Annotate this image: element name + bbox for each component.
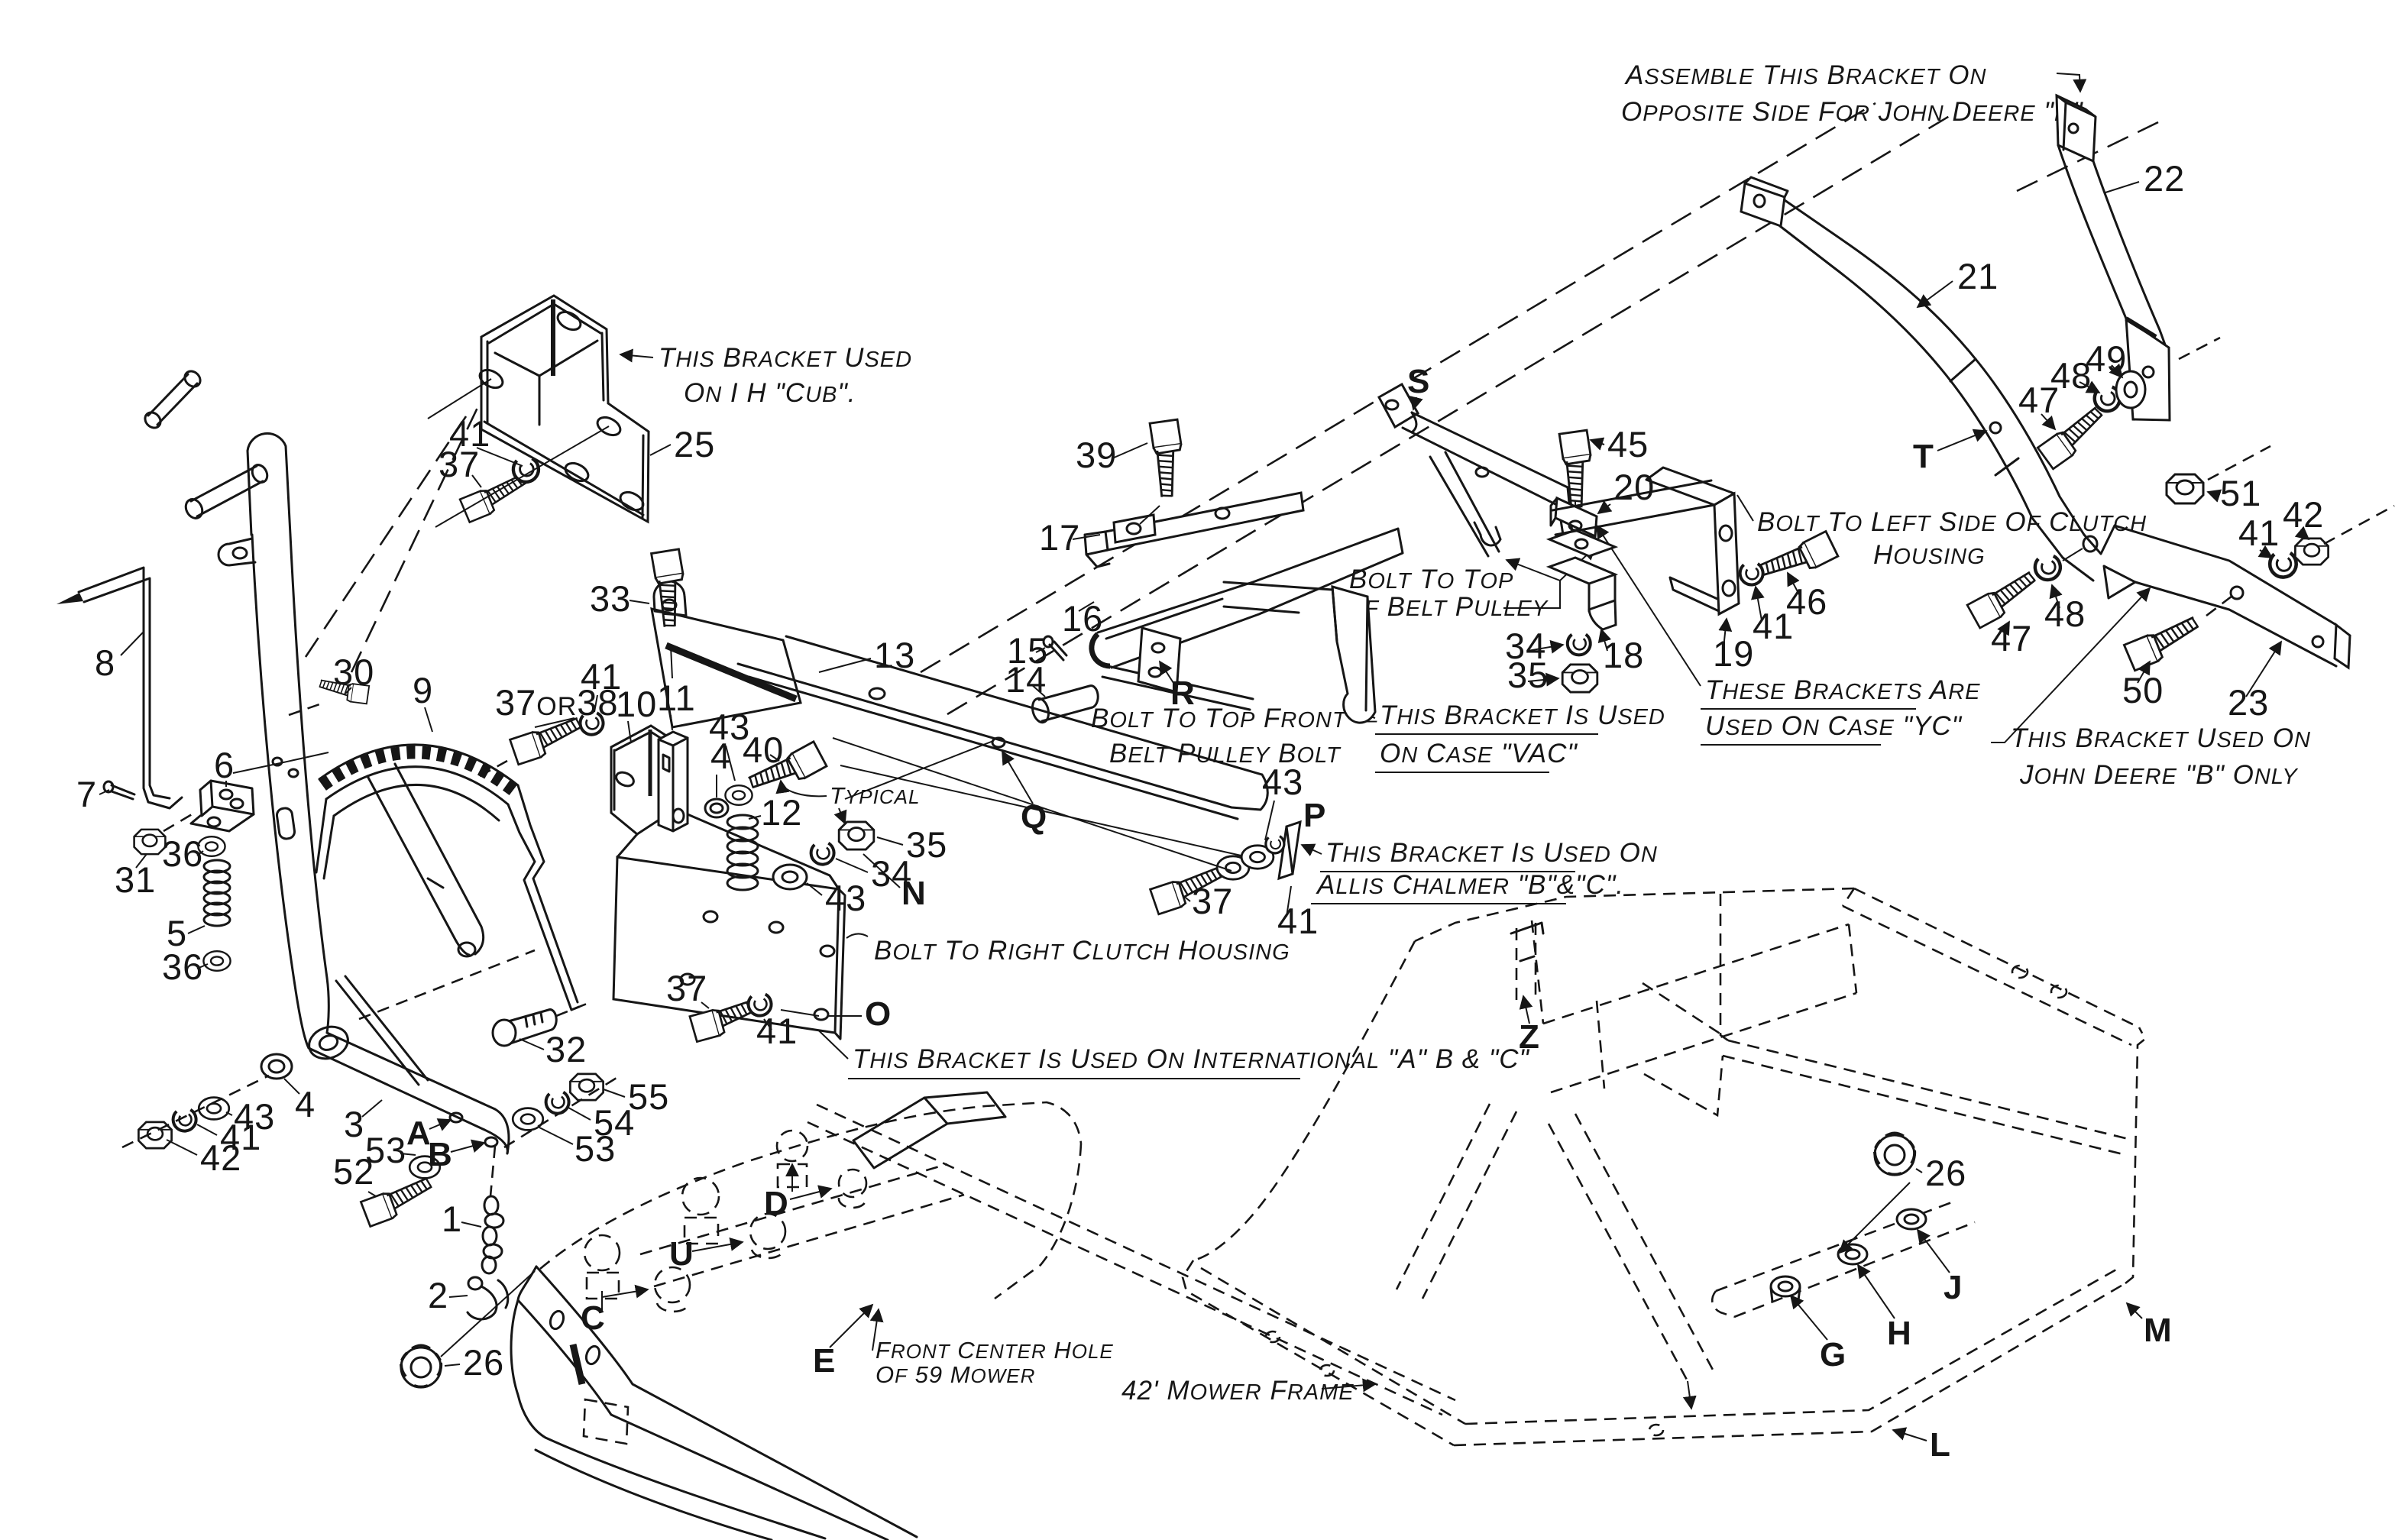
svg-text:ON CASE "VAC": ON CASE "VAC" bbox=[1380, 739, 1578, 768]
svg-text:41: 41 bbox=[1277, 901, 1319, 941]
svg-text:26: 26 bbox=[1925, 1153, 1966, 1193]
svg-text:Z: Z bbox=[1519, 1018, 1539, 1056]
svg-text:4: 4 bbox=[295, 1084, 316, 1124]
svg-text:ASSEMBLE THIS BRACKET ON: ASSEMBLE THIS BRACKET ON bbox=[1624, 60, 1986, 90]
svg-text:THIS BRACKET USED: THIS BRACKET USED bbox=[659, 343, 912, 373]
svg-text:A: A bbox=[406, 1115, 431, 1152]
svg-text:18: 18 bbox=[1603, 635, 1644, 675]
svg-text:D: D bbox=[764, 1185, 788, 1222]
svg-text:43: 43 bbox=[825, 878, 866, 918]
svg-text:BOLT TO TOP: BOLT TO TOP bbox=[1349, 565, 1513, 594]
svg-text:6: 6 bbox=[214, 745, 235, 785]
svg-text:T: T bbox=[1913, 438, 1934, 475]
svg-text:51: 51 bbox=[2220, 473, 2261, 513]
svg-text:50: 50 bbox=[2122, 670, 2164, 710]
svg-text:8: 8 bbox=[95, 642, 115, 683]
svg-text:THIS BRACKET IS USED: THIS BRACKET IS USED bbox=[1380, 700, 1665, 730]
svg-text:TYPICAL: TYPICAL bbox=[830, 782, 920, 809]
svg-text:7: 7 bbox=[76, 774, 97, 814]
svg-text:4: 4 bbox=[710, 736, 731, 776]
svg-text:35: 35 bbox=[1507, 655, 1549, 695]
svg-text:15: 15 bbox=[1007, 630, 1048, 671]
svg-text:N: N bbox=[901, 875, 926, 912]
svg-text:ALLIS CHALMER "B"&"C".: ALLIS CHALMER "B"&"C". bbox=[1316, 870, 1624, 900]
svg-text:48: 48 bbox=[2044, 594, 2086, 634]
svg-text:JOHN DEERE "B" ONLY: JOHN DEERE "B" ONLY bbox=[2019, 760, 2299, 790]
svg-text:OF BELT PULLEY: OF BELT PULLEY bbox=[1343, 592, 1549, 622]
svg-text:40: 40 bbox=[743, 730, 784, 770]
svg-text:17: 17 bbox=[1039, 517, 1080, 558]
svg-text:J: J bbox=[1944, 1269, 1962, 1306]
svg-text:FRONT CENTER HOLE: FRONT CENTER HOLE bbox=[875, 1337, 1114, 1364]
svg-text:11: 11 bbox=[657, 678, 696, 718]
svg-text:Q: Q bbox=[1021, 798, 1047, 836]
svg-text:45: 45 bbox=[1607, 424, 1649, 464]
svg-text:USED ON CASE "YC": USED ON CASE "YC" bbox=[1705, 711, 1963, 741]
svg-text:53: 53 bbox=[365, 1130, 406, 1170]
svg-text:39: 39 bbox=[1076, 435, 1117, 475]
svg-text:OF 59 MOWER: OF 59 MOWER bbox=[875, 1361, 1035, 1388]
svg-text:E: E bbox=[813, 1342, 835, 1380]
svg-text:43: 43 bbox=[1262, 762, 1303, 802]
svg-text:2: 2 bbox=[428, 1275, 448, 1315]
svg-text:THIS BRACKET IS USED ON: THIS BRACKET IS USED ON bbox=[1325, 838, 1658, 868]
svg-text:THESE BRACKETS ARE: THESE BRACKETS ARE bbox=[1705, 675, 1981, 705]
svg-text:20: 20 bbox=[1613, 467, 1655, 507]
svg-text:U: U bbox=[669, 1235, 694, 1273]
svg-text:49: 49 bbox=[2086, 338, 2127, 379]
svg-text:M: M bbox=[2144, 1312, 2172, 1349]
svg-text:OPPOSITE SIDE FOR JOHN DEERE ": OPPOSITE SIDE FOR JOHN DEERE "B" bbox=[1621, 97, 2083, 127]
svg-text:55: 55 bbox=[628, 1076, 669, 1117]
svg-text:R: R bbox=[1170, 675, 1195, 712]
svg-text:36: 36 bbox=[162, 833, 203, 874]
svg-text:47: 47 bbox=[1991, 618, 2032, 658]
svg-text:P: P bbox=[1303, 797, 1325, 834]
svg-text:23: 23 bbox=[2228, 682, 2269, 723]
svg-text:H: H bbox=[1887, 1315, 1911, 1352]
svg-text:BOLT TO RIGHT CLUTCH HOUSING: BOLT TO RIGHT CLUTCH HOUSING bbox=[874, 936, 1290, 966]
svg-text:36: 36 bbox=[162, 946, 203, 987]
svg-text:25: 25 bbox=[674, 424, 715, 464]
svg-text:41: 41 bbox=[1753, 606, 1794, 646]
svg-text:1: 1 bbox=[442, 1199, 462, 1239]
svg-text:9: 9 bbox=[413, 670, 433, 710]
svg-text:3: 3 bbox=[344, 1104, 364, 1144]
svg-text:BOLT TO TOP FRONT —: BOLT TO TOP FRONT — bbox=[1091, 704, 1377, 733]
svg-text:O: O bbox=[865, 995, 891, 1033]
svg-text:THIS BRACKET USED ON: THIS BRACKET USED ON bbox=[2011, 723, 2311, 753]
svg-text:ON I H "CUB".: ON I H "CUB". bbox=[684, 378, 856, 408]
svg-text:19: 19 bbox=[1713, 633, 1754, 674]
svg-text:41: 41 bbox=[2238, 513, 2280, 553]
svg-text:THIS BRACKET IS USED ON INTERN: THIS BRACKET IS USED ON INTERNATIONAL "A… bbox=[853, 1044, 1530, 1074]
svg-text:42: 42 bbox=[2283, 494, 2324, 535]
svg-text:G: G bbox=[1820, 1336, 1846, 1373]
svg-text:L: L bbox=[1930, 1426, 1950, 1464]
svg-text:41: 41 bbox=[756, 1011, 798, 1051]
svg-text:13: 13 bbox=[874, 635, 915, 675]
svg-text:16: 16 bbox=[1062, 598, 1103, 639]
svg-text:S: S bbox=[1407, 363, 1429, 400]
svg-text:HOUSING: HOUSING bbox=[1873, 540, 1986, 570]
svg-text:12: 12 bbox=[761, 792, 802, 833]
svg-text:32: 32 bbox=[545, 1029, 587, 1069]
svg-text:42' MOWER FRAME: 42' MOWER FRAME bbox=[1121, 1376, 1354, 1406]
svg-text:31: 31 bbox=[115, 859, 156, 900]
svg-text:10: 10 bbox=[616, 684, 657, 724]
svg-text:BOLT TO LEFT SIDE OF CLUTCH: BOLT TO LEFT SIDE OF CLUTCH bbox=[1757, 507, 2147, 537]
svg-text:42: 42 bbox=[200, 1137, 241, 1178]
svg-text:37: 37 bbox=[1192, 881, 1233, 921]
svg-text:B: B bbox=[428, 1136, 452, 1173]
svg-text:22: 22 bbox=[2144, 158, 2185, 199]
svg-text:26: 26 bbox=[463, 1342, 504, 1383]
svg-text:33: 33 bbox=[590, 578, 631, 619]
svg-text:30: 30 bbox=[333, 652, 374, 692]
svg-text:21: 21 bbox=[1957, 256, 1999, 296]
